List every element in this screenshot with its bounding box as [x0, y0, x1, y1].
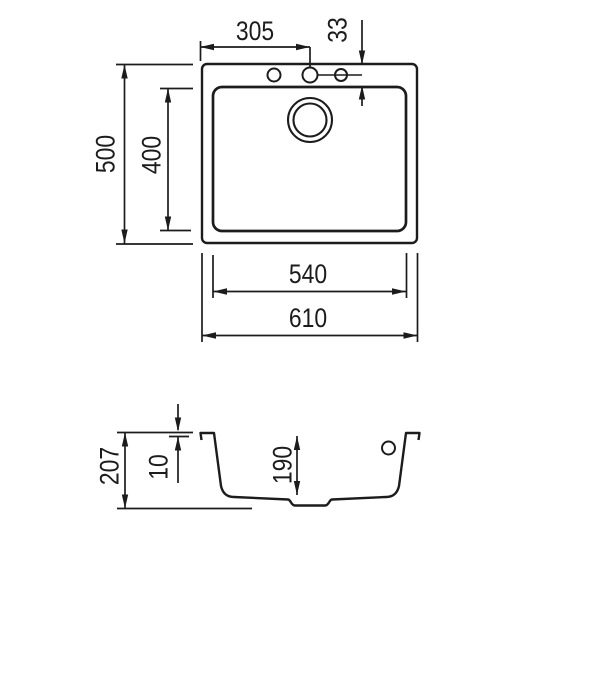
arrowhead-down [122, 495, 128, 509]
sink-dimension-drawing: 305 33 500 400 [0, 0, 600, 689]
arrowhead-right [296, 44, 310, 50]
dim-label-500: 500 [91, 135, 121, 173]
dim-label-10: 10 [144, 454, 174, 480]
technical-drawing-page: 305 33 500 400 [0, 0, 600, 689]
dim-label-190: 190 [268, 446, 298, 484]
arrowhead-right [392, 288, 406, 294]
arrowhead-down [294, 481, 300, 495]
tap-hole-left [268, 69, 281, 82]
section-profile [201, 433, 420, 506]
dim-label-400: 400 [137, 136, 167, 174]
dim-label-540: 540 [289, 259, 327, 289]
arrowhead-right [404, 332, 418, 338]
arrowhead-left [202, 332, 216, 338]
arrowhead-left [213, 288, 227, 294]
arrowhead-left [200, 44, 214, 50]
sink-top-view [202, 64, 417, 243]
bowl-inner-edge [213, 87, 406, 231]
dim-label-33: 33 [323, 17, 353, 43]
arrowhead-up [121, 65, 127, 79]
sink-outer-edge [202, 64, 417, 243]
dim-label-207: 207 [95, 447, 125, 485]
dimension-540: 540 [213, 253, 407, 298]
arrowhead-down [165, 217, 171, 231]
arrowhead-up [122, 433, 128, 447]
dimension-400: 400 [137, 89, 193, 231]
drain-inner-circle [294, 104, 327, 137]
sink-section-view [201, 433, 420, 506]
overflow-hole [382, 442, 395, 455]
dimension-10: 10 [144, 404, 189, 483]
dimension-33: 33 [323, 17, 365, 106]
dimension-190: 190 [268, 436, 300, 495]
arrowhead-up [165, 89, 171, 103]
dimension-305: 305 [200, 16, 310, 68]
dim-label-610: 610 [289, 303, 327, 333]
arrowhead-down [175, 418, 181, 432]
arrowhead-down [121, 230, 127, 244]
arrowhead-down [359, 51, 365, 65]
dim-label-305: 305 [236, 16, 274, 46]
drain-outer-circle [288, 98, 332, 142]
arrowhead-up [294, 436, 300, 450]
tap-hole-center [303, 68, 318, 83]
